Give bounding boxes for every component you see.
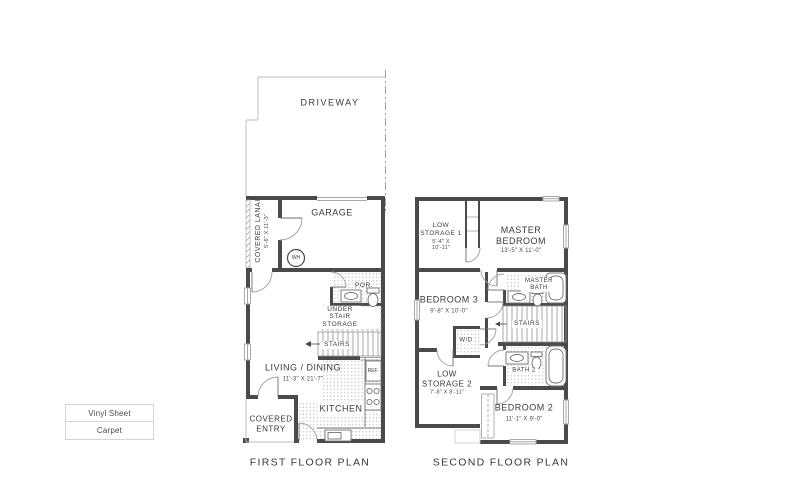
floor-plan-canvas: DRIVEWAY GARAGE WH COVERED LANAI 5'-6" X… xyxy=(0,0,800,492)
low-storage-1-name: LOW STORAGE 1 xyxy=(420,222,462,238)
bath2-tub-icon xyxy=(546,346,566,386)
legend-carpet: Carpet xyxy=(65,421,154,440)
bath2-door-arc xyxy=(488,350,504,366)
low-storage-1-dim: 5'-4" X 10'-11" xyxy=(424,239,458,252)
stairs1-label: STAIRS xyxy=(322,341,352,349)
bedroom-2-name: BEDROOM 2 xyxy=(495,402,554,412)
kitchen-label: KITCHEN xyxy=(317,404,364,415)
covered-lanai-label: COVERED LANAI 5'-6" X 11'-3" xyxy=(255,199,271,262)
covered-lanai-name: COVERED LANAI xyxy=(255,199,263,262)
bedroom-2-label: BEDROOM 2 11'-1" X 9'-0" xyxy=(495,396,554,423)
master-bath-door-arc xyxy=(488,274,504,290)
living-dining-dim: 11'-3" X 21'-7" xyxy=(265,377,341,384)
master-bath-sink-icon xyxy=(508,291,530,303)
lanai-door-arc xyxy=(252,272,272,292)
low-storage-2-name: LOW STORAGE 2 xyxy=(417,370,477,389)
second-floor-caption: SECOND FLOOR PLAN xyxy=(433,457,569,470)
water-heater-label: WH xyxy=(292,255,300,261)
garage-door-arc xyxy=(280,218,302,240)
legend-vinyl-label: Vinyl Sheet xyxy=(86,409,133,418)
low-storage-2-dim: 7'-8" X 8'-11" xyxy=(417,390,477,397)
bath2-sink-icon xyxy=(506,352,528,364)
front-door-arc xyxy=(299,423,317,441)
master-bath-label: MASTER BATH xyxy=(521,278,557,292)
stair2-direction-arrow xyxy=(495,322,507,327)
driveway-outline xyxy=(246,77,385,196)
master-bedroom-label: MASTER BEDROOM 13'-5" X 11'-0" xyxy=(481,225,561,255)
bath2-fixtures xyxy=(506,346,566,386)
master-bedroom-dim: 13'-5" X 11'-0" xyxy=(481,248,561,255)
bedroom-3-label: BEDROOM 3 9'-8" X 10'-0" xyxy=(420,288,479,315)
legend-carpet-label: Carpet xyxy=(97,426,122,435)
low-storage-2-label: LOW STORAGE 2 7'-8" X 8'-11" xyxy=(417,370,477,397)
fridge-label: REF. xyxy=(368,368,379,374)
powder-room-label: POR. xyxy=(355,282,373,290)
first-floor-caption: FIRST FLOOR PLAN xyxy=(250,457,370,470)
washer-dryer-label: W/D xyxy=(457,337,474,344)
under-stair-storage-label: UNDER STAIR STORAGE xyxy=(318,306,362,328)
covered-entry-label: COVERED ENTRY xyxy=(241,414,301,433)
bath-2-label: BATH 2 xyxy=(510,367,538,374)
bedroom-3-name: BEDROOM 3 xyxy=(420,294,479,304)
stairs2-label: STAIRS xyxy=(512,320,542,328)
bedroom-3-dim: 9'-8" X 10'-0" xyxy=(420,309,479,316)
powder-toilet-icon xyxy=(367,288,379,307)
master-bedroom-name: MASTER BEDROOM xyxy=(481,225,561,247)
kitchen-sink-icon xyxy=(325,430,351,441)
driveway-label: DRIVEWAY xyxy=(300,98,359,109)
bedroom-2-dim: 11'-1" X 9'-0" xyxy=(495,417,554,424)
garage-label: GARAGE xyxy=(311,208,353,219)
powder-sink-icon xyxy=(341,290,361,302)
living-dining-label: LIVING / DINING 11'-3" X 21'-7" xyxy=(265,356,341,383)
stove-icon xyxy=(365,384,381,410)
bedroom3-door-arc xyxy=(487,302,503,318)
living-dining-name: LIVING / DINING xyxy=(265,362,341,372)
storage1-door-arc xyxy=(466,248,480,262)
covered-lanai-dim: 5'-6" X 11'-3" xyxy=(264,199,271,262)
powder-door-arc xyxy=(331,272,346,287)
low-storage-1-label: LOW STORAGE 1 5'-4" X 10'-11" xyxy=(420,222,462,252)
storage2-door-arc xyxy=(437,350,453,366)
